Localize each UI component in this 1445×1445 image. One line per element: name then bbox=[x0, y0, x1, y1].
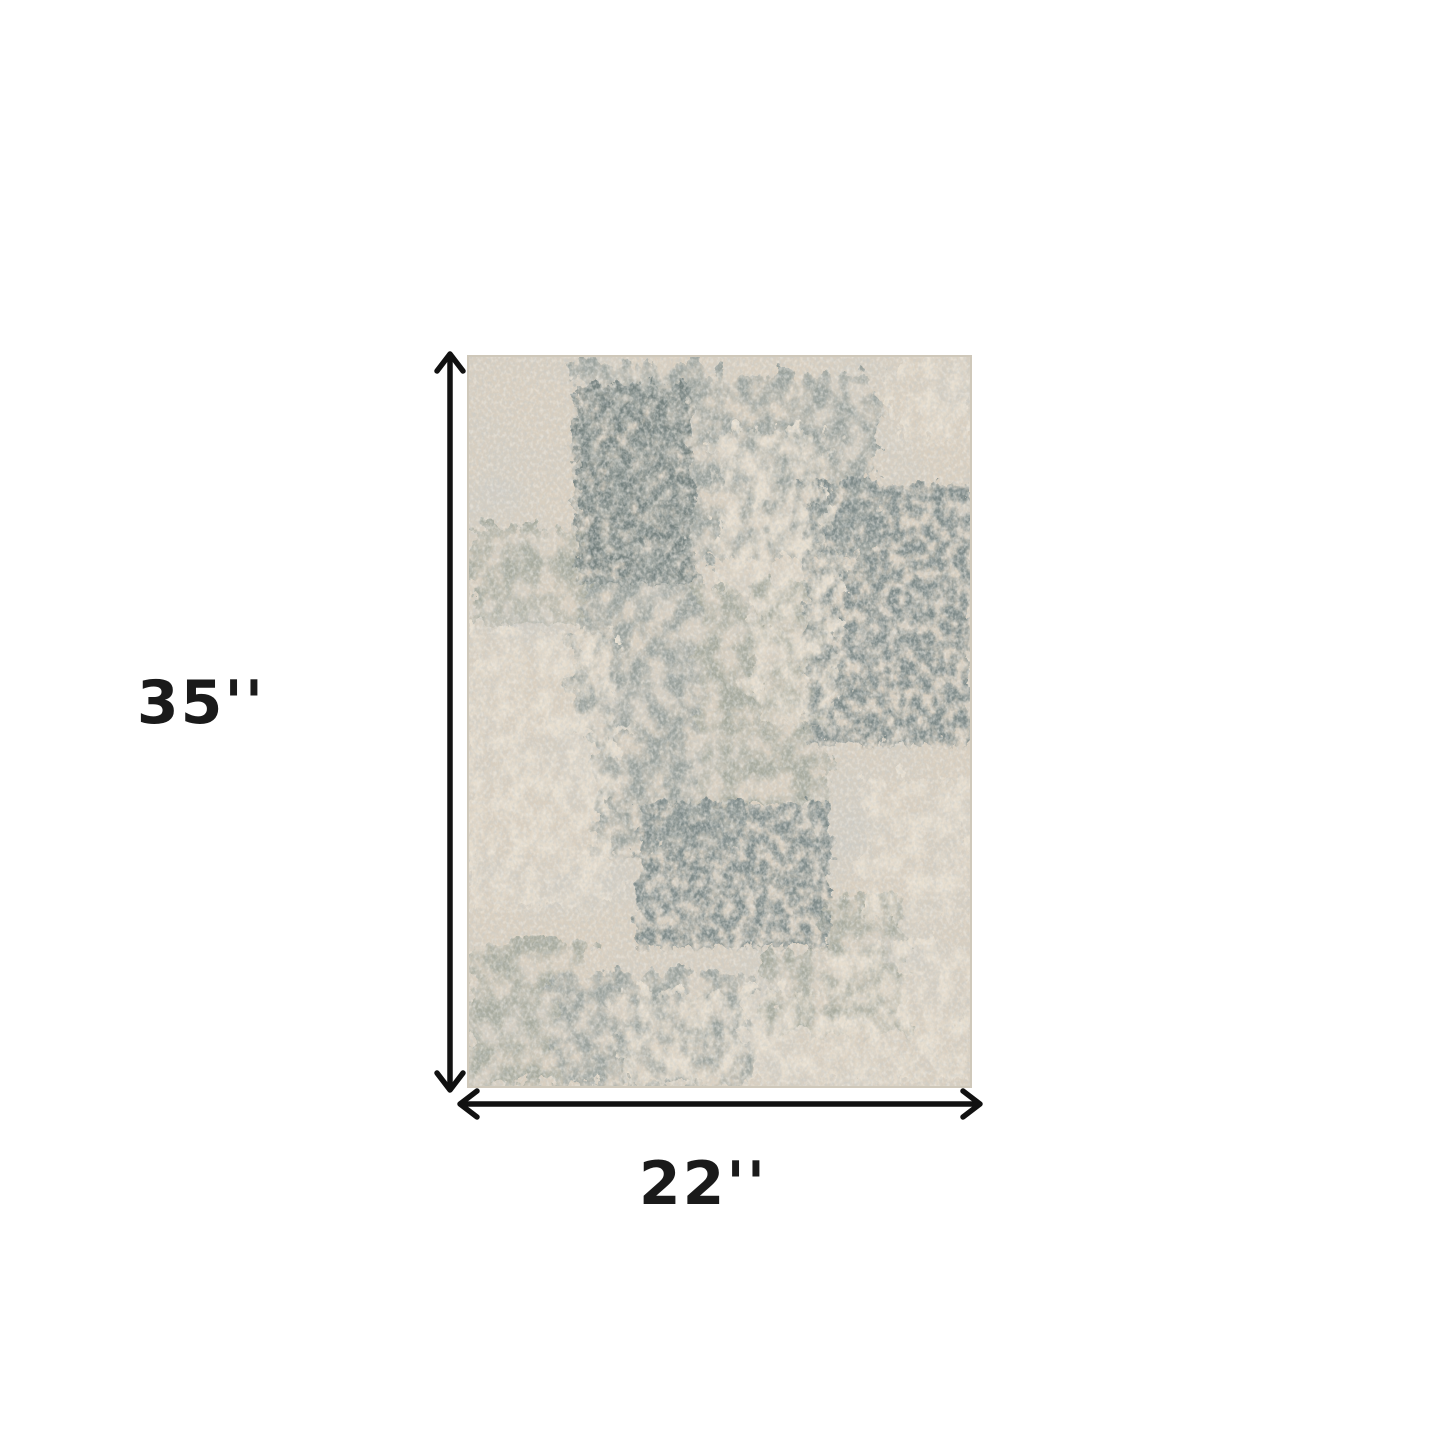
width-arrow-icon bbox=[460, 1091, 980, 1117]
height-dimension-label: 35'' bbox=[137, 668, 265, 738]
width-dimension-label: 22'' bbox=[639, 1149, 767, 1219]
rug-image bbox=[467, 355, 972, 1088]
rug-grain-cream bbox=[467, 355, 972, 1088]
height-arrow-icon bbox=[437, 354, 463, 1090]
product-dimension-diagram: 35'' 22'' bbox=[0, 0, 1445, 1445]
